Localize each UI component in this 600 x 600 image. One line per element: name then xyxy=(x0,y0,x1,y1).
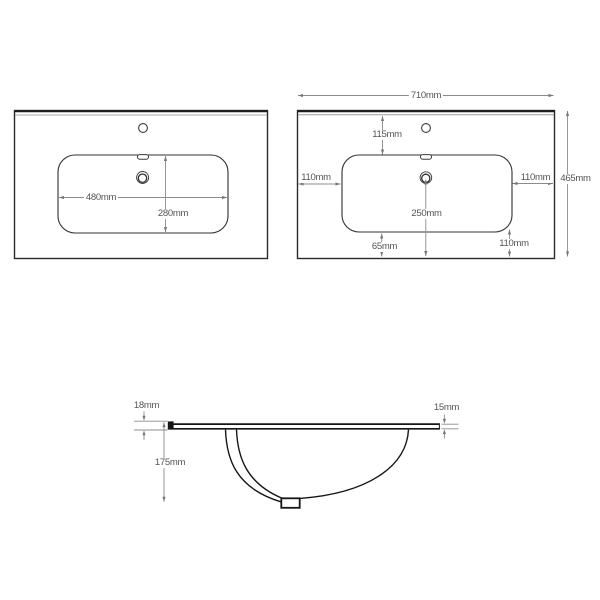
dim-label-110-bottom: 110mm xyxy=(497,239,530,249)
dim-label-18: 18mm xyxy=(132,401,161,411)
basin-outline xyxy=(342,155,512,232)
dim-label-250: 250mm xyxy=(409,209,443,219)
arrow-right-710 xyxy=(549,94,554,97)
dim-label-465: 465mm xyxy=(558,174,592,184)
overflow-slot xyxy=(421,155,432,160)
arrow-left-710 xyxy=(298,94,303,97)
arrow-down-465 xyxy=(566,252,569,257)
tap-hole xyxy=(422,124,431,133)
arrow-up-15 xyxy=(443,429,446,434)
dim-label-110-left: 110mm xyxy=(299,173,332,183)
arrow-down-15 xyxy=(443,419,446,424)
arrow-up-465 xyxy=(566,111,569,116)
drain-fitting xyxy=(281,498,299,508)
overflow-slot xyxy=(138,155,149,160)
bowl-inner-left-wall xyxy=(237,430,283,499)
arrow-down-175 xyxy=(162,497,165,502)
dim-label-65: 65mm xyxy=(370,242,399,252)
front-edge-lip xyxy=(168,421,174,429)
plan-view-left xyxy=(15,111,268,259)
bowl-right-wall xyxy=(300,430,409,499)
dim-label-175: 175mm xyxy=(153,458,187,468)
drain-inner-ring xyxy=(138,174,146,182)
dim-label-280: 280mm xyxy=(156,209,190,219)
arrow-up-18 xyxy=(142,431,145,436)
dim-label-710: 710mm xyxy=(409,91,443,101)
dim-label-115: 115mm xyxy=(370,130,403,140)
tap-hole xyxy=(139,124,148,133)
dim-label-15: 15mm xyxy=(432,403,461,413)
dim-label-110-right: 110mm xyxy=(519,173,552,183)
dim-label-480: 480mm xyxy=(84,193,118,203)
arrow-up-175 xyxy=(162,422,165,427)
arrow-down-18 xyxy=(142,416,145,421)
drawing-linework xyxy=(0,0,600,600)
technical-drawing-canvas: 480mm 280mm 710mm 465mm 115mm 110mm 110m… xyxy=(0,0,600,600)
bowl-outer-left-wall xyxy=(226,430,281,502)
